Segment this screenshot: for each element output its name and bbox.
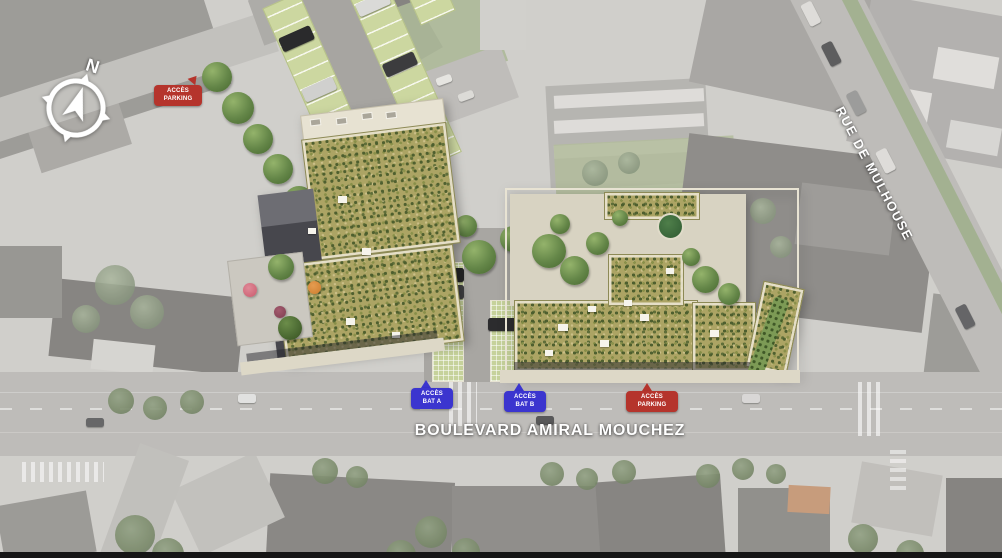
access-bat-b-arrow-icon xyxy=(514,383,524,391)
tree xyxy=(268,254,294,280)
badge-line: ACCÈS xyxy=(414,391,450,399)
skylight xyxy=(666,268,674,274)
tree xyxy=(202,62,232,92)
skylight xyxy=(346,318,355,325)
skylight xyxy=(362,248,371,255)
skylight xyxy=(710,330,719,337)
tree xyxy=(612,210,628,226)
tree xyxy=(560,256,589,285)
access-parking-badge-south: ACCÈS PARKING xyxy=(626,391,678,412)
access-parking-badge-northwest: ACCÈS PARKING xyxy=(154,85,202,106)
green-roof xyxy=(608,254,684,306)
skylight xyxy=(558,324,568,331)
tree xyxy=(718,283,740,305)
skylight xyxy=(338,196,347,203)
badge-line: ACCÈS xyxy=(629,394,675,402)
street-label-boulevard: BOULEVARD AMIRAL MOUCHEZ xyxy=(385,422,715,440)
umbrella xyxy=(243,283,257,297)
badge-line: BAT B xyxy=(507,402,543,410)
green-roof xyxy=(301,122,461,261)
tree xyxy=(278,316,302,340)
access-bat-a-arrow-icon xyxy=(421,380,431,388)
skylight xyxy=(600,340,609,347)
round-lawn xyxy=(657,213,684,240)
site-plan-render xyxy=(0,0,1002,558)
umbrella xyxy=(308,281,321,294)
aerial-site-plan: N ACCÈS PARKING ACCÈS BAT A ACCÈS BAT B … xyxy=(0,0,1002,558)
skylight xyxy=(640,314,649,321)
bottom-bar xyxy=(0,552,1002,558)
skylight xyxy=(545,350,553,356)
access-bat-b-badge: ACCÈS BAT B xyxy=(504,391,546,412)
skylight xyxy=(624,300,632,306)
badge-line: ACCÈS xyxy=(157,88,199,96)
sidewalk xyxy=(500,370,800,383)
badge-line: PARKING xyxy=(629,402,675,410)
tree xyxy=(586,232,609,255)
skylight xyxy=(588,306,596,312)
badge-line: PARKING xyxy=(157,96,199,104)
skylight xyxy=(308,228,316,234)
access-parking-south-arrow-icon xyxy=(642,383,652,391)
badge-line: BAT A xyxy=(414,399,450,407)
tree xyxy=(550,214,570,234)
tree xyxy=(682,248,700,266)
badge-line: ACCÈS xyxy=(507,394,543,402)
access-bat-a-badge: ACCÈS BAT A xyxy=(411,388,453,409)
tree xyxy=(692,266,719,293)
